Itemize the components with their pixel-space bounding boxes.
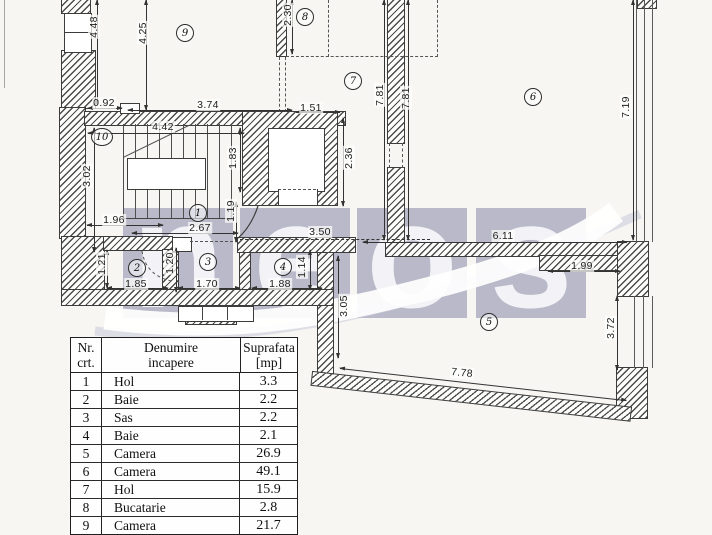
room-number-badge: 2 <box>128 259 146 277</box>
table-body: 1Hol3.32Baie2.23Sas2.24Baie2.15Camera26.… <box>71 373 297 534</box>
door-swing-arc <box>237 206 258 239</box>
cell-denumire: Hol <box>102 481 240 498</box>
dimension-label: 1.20 <box>164 251 176 275</box>
dimension-label: 2.30 <box>282 3 294 27</box>
table-row: 6Camera49.1 <box>71 463 297 481</box>
dimension-label: 3.02 <box>81 164 93 188</box>
cell-suprafata: 2.1 <box>240 427 297 444</box>
cell-suprafata: 2.2 <box>240 391 297 408</box>
room-number-badge: 7 <box>344 72 362 90</box>
cell-nr: 8 <box>71 499 102 516</box>
room-number-badge: 9 <box>176 24 194 42</box>
cell-nr: 5 <box>71 445 102 462</box>
dim-line <box>240 128 241 192</box>
dimension-label: 1.96 <box>102 214 126 226</box>
dimension-label: 1.21 <box>96 252 108 276</box>
header-denumire: Denumire incapere <box>102 338 241 372</box>
room-number-badge: 10 <box>91 128 113 146</box>
dimension-label: 3.74 <box>196 99 220 111</box>
header-text: crt. <box>77 355 95 370</box>
dim-line <box>176 248 177 292</box>
dimension-label: 3.72 <box>605 316 617 340</box>
dimension-label: 1.85 <box>124 278 148 290</box>
dimension-label: 1.83 <box>227 146 239 170</box>
table-header: Nr. crt. Denumire incapere Suprafata [mp… <box>71 338 297 373</box>
room-number-badge: 8 <box>296 8 314 26</box>
dim-line <box>384 0 385 240</box>
cell-denumire: Bucatarie <box>102 499 240 516</box>
cell-nr: 6 <box>71 463 102 480</box>
table-row: 3Sas2.2 <box>71 409 297 427</box>
cell-suprafata: 3.3 <box>240 373 297 390</box>
dimension-label: 1.51 <box>299 102 323 114</box>
table-row: 8Bucatarie2.8 <box>71 499 297 517</box>
cell-nr: 2 <box>71 391 102 408</box>
cell-suprafata: 49.1 <box>240 463 297 480</box>
cell-suprafata: 26.9 <box>240 445 297 462</box>
cell-denumire: Camera <box>102 445 240 462</box>
cell-suprafata: 2.2 <box>240 409 297 426</box>
table-row: 5Camera26.9 <box>71 445 297 463</box>
dimension-label: 1.70 <box>195 278 219 290</box>
cell-nr: 4 <box>71 427 102 444</box>
table-row: 9Camera21.7 <box>71 517 297 534</box>
cell-suprafata: 21.7 <box>240 517 297 534</box>
cell-nr: 3 <box>71 409 102 426</box>
room-areas-table: Nr. crt. Denumire incapere Suprafata [mp… <box>70 337 298 535</box>
cell-denumire: Camera <box>102 517 240 534</box>
cell-suprafata: 15.9 <box>240 481 297 498</box>
scanned-floor-plan-page: { "watermark": { "tile_color": "#b9b9c9"… <box>0 0 712 527</box>
floor-plan-canvas: neos <box>0 0 712 527</box>
dimension-label: 4.25 <box>137 21 149 45</box>
dimension-label: 4.48 <box>88 15 100 39</box>
dim-line <box>310 250 311 290</box>
header-text: incapere <box>148 355 194 370</box>
dimension-label: 3.05 <box>338 294 350 318</box>
dimension-label: 2.36 <box>343 146 355 170</box>
dim-line <box>94 128 95 252</box>
cell-nr: 7 <box>71 481 102 498</box>
table-row: 7Hol15.9 <box>71 481 297 499</box>
cell-denumire: Sas <box>102 409 240 426</box>
cell-nr: 1 <box>71 373 102 390</box>
dimension-label: 1.88 <box>268 278 292 290</box>
cell-denumire: Baie <box>102 427 240 444</box>
dim-line <box>146 0 147 110</box>
room-number-badge: 6 <box>524 88 542 106</box>
dimension-label: 7.81 <box>400 86 412 110</box>
header-text: Suprafata <box>243 340 295 355</box>
dim-line <box>132 233 238 234</box>
dimension-label: 1.14 <box>296 255 308 279</box>
dimension-label: 3.50 <box>308 226 332 238</box>
dimension-label: 6.11 <box>492 230 515 242</box>
header-text: [mp] <box>256 355 282 370</box>
dim-line <box>617 296 618 370</box>
table-row: 4Baie2.1 <box>71 427 297 445</box>
cell-denumire: Camera <box>102 463 240 480</box>
dimension-label: 7.19 <box>620 95 632 119</box>
cell-nr: 9 <box>71 517 102 534</box>
dimension-label: 0.92 <box>92 97 116 109</box>
dimension-label: 7.78 <box>450 366 475 380</box>
dimension-label: 1.19 <box>225 199 237 223</box>
cell-denumire: Hol <box>102 373 240 390</box>
cell-suprafata: 2.8 <box>240 499 297 516</box>
header-text: Nr. <box>78 340 95 355</box>
dimension-label: 7.81 <box>374 83 386 107</box>
cell-denumire: Baie <box>102 391 240 408</box>
dim-line-dashed <box>240 239 430 240</box>
dimension-label: 4.42 <box>151 121 175 133</box>
room-number-badge: 4 <box>274 258 292 276</box>
dim-line <box>363 242 627 243</box>
dimension-label: 2.67 <box>188 222 212 234</box>
dimension-label: 1.99 <box>570 260 594 272</box>
room-number-badge: 3 <box>199 253 217 271</box>
room-number-badge: 5 <box>480 313 498 331</box>
room-number-badge: 1 <box>189 204 207 222</box>
header-suprafata: Suprafata [mp] <box>241 338 297 372</box>
header-text: Denumire <box>144 340 198 355</box>
dim-line <box>633 0 634 240</box>
dim-line <box>408 0 409 240</box>
table-row: 1Hol3.3 <box>71 373 297 391</box>
header-nr-crt: Nr. crt. <box>71 338 102 372</box>
table-row: 2Baie2.2 <box>71 391 297 409</box>
